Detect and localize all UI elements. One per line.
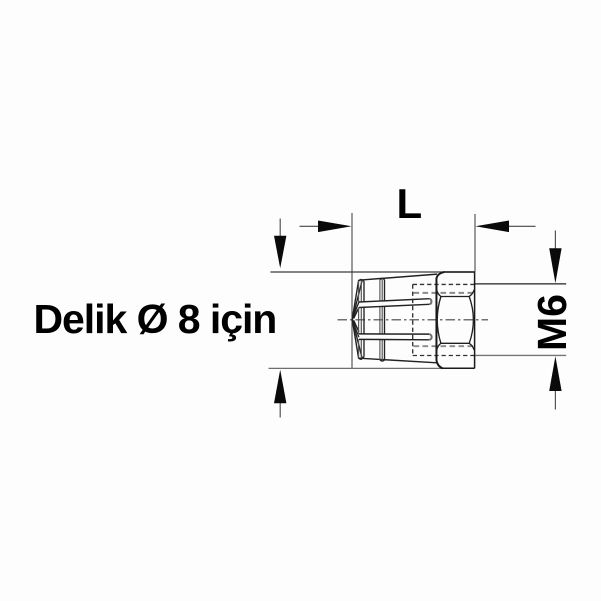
- svg-text:L: L: [397, 180, 423, 227]
- svg-text:Delik Ø 8 için: Delik Ø 8 için: [34, 296, 277, 342]
- svg-text:M6: M6: [529, 294, 575, 351]
